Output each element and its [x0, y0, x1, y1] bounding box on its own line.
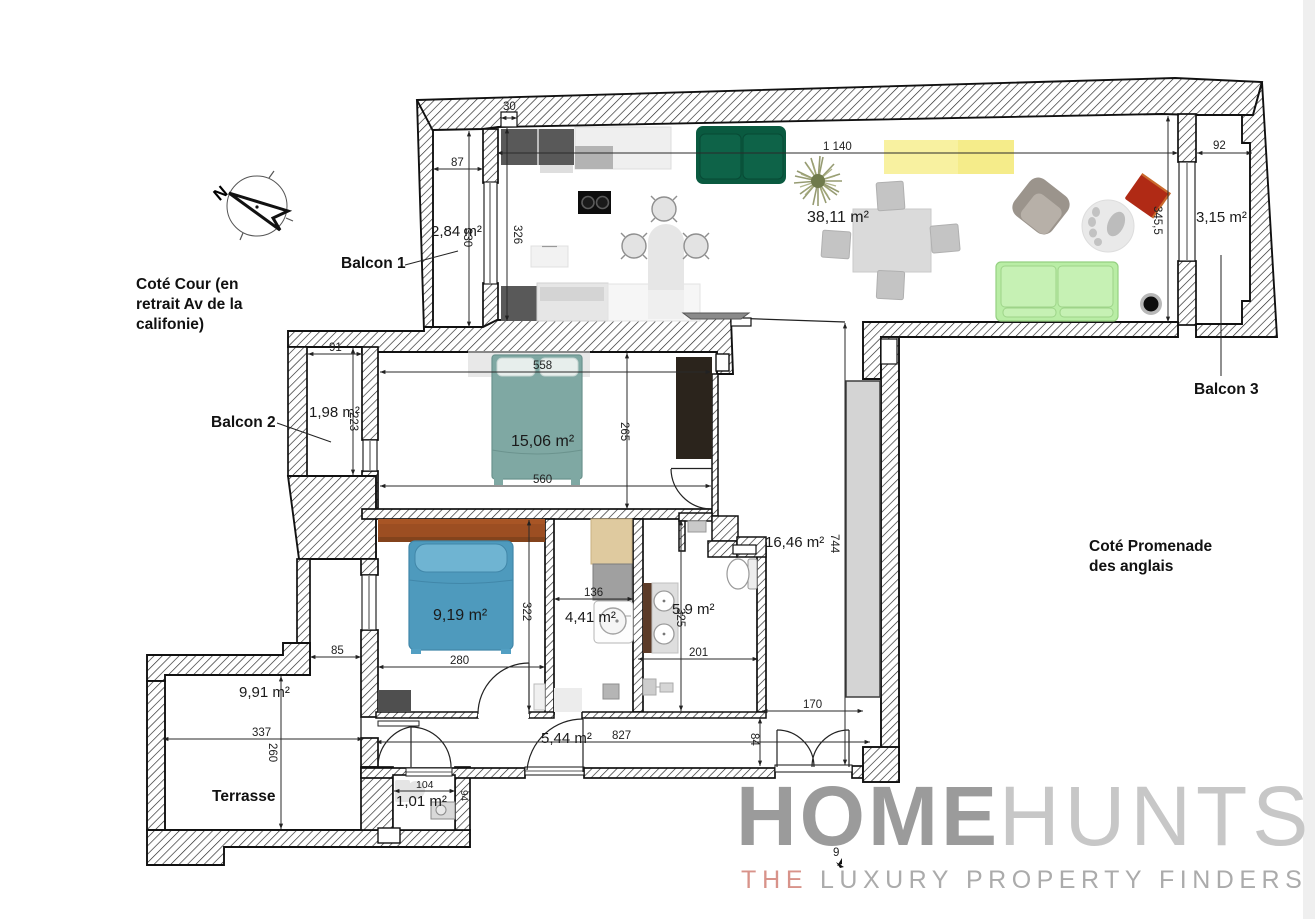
svg-text:9,19 m²: 9,19 m²	[433, 607, 488, 624]
svg-text:136: 136	[584, 587, 603, 599]
svg-text:Coté Promenade: Coté Promenade	[1089, 538, 1213, 555]
svg-text:1,98 m²: 1,98 m²	[309, 404, 360, 421]
svg-text:1 140: 1 140	[823, 141, 852, 153]
svg-text:744: 744	[828, 534, 840, 554]
svg-text:345,5: 345,5	[1151, 206, 1163, 235]
svg-text:337: 337	[252, 727, 271, 739]
svg-text:2,84 m²: 2,84 m²	[431, 223, 482, 240]
svg-text:201: 201	[689, 647, 708, 659]
svg-text:30: 30	[503, 101, 516, 113]
svg-text:Coté Cour (en: Coté Cour (en	[136, 276, 238, 293]
svg-text:THE: THE	[741, 866, 808, 894]
svg-text:HOME: HOME	[736, 769, 1000, 863]
svg-text:91: 91	[329, 342, 342, 354]
svg-text:92: 92	[1213, 140, 1226, 152]
svg-text:des anglais: des anglais	[1089, 558, 1173, 575]
svg-text:326: 326	[511, 225, 523, 244]
svg-text:558: 558	[533, 360, 552, 372]
svg-text:Balcon 1: Balcon 1	[341, 255, 406, 272]
svg-text:retrait Av de la: retrait Av de la	[136, 296, 243, 313]
svg-text:170: 170	[803, 699, 822, 711]
svg-text:87: 87	[451, 157, 464, 169]
svg-text:827: 827	[612, 730, 631, 742]
svg-text:califonie): califonie)	[136, 316, 204, 333]
svg-text:4,41 m²: 4,41 m²	[565, 609, 616, 626]
svg-text:LUXURY PROPERTY FINDERS: LUXURY PROPERTY FINDERS	[820, 866, 1307, 894]
svg-text:280: 280	[450, 655, 469, 667]
svg-text:560: 560	[533, 474, 552, 486]
svg-text:Balcon 2: Balcon 2	[211, 414, 276, 431]
svg-text:94: 94	[458, 790, 469, 802]
svg-text:104: 104	[416, 779, 434, 791]
svg-text:16,46 m²: 16,46 m²	[765, 534, 824, 551]
svg-text:3,15 m²: 3,15 m²	[1196, 209, 1247, 226]
svg-text:15,06 m²: 15,06 m²	[511, 433, 575, 450]
svg-text:5,9 m²: 5,9 m²	[672, 601, 715, 618]
svg-text:Terrasse: Terrasse	[212, 788, 276, 805]
svg-text:84: 84	[748, 733, 760, 746]
svg-text:1,01 m²: 1,01 m²	[396, 793, 447, 810]
svg-text:38,11 m²: 38,11 m²	[807, 209, 870, 226]
svg-text:260: 260	[266, 743, 278, 762]
svg-text:5,44 m²: 5,44 m²	[541, 730, 592, 747]
svg-text:322: 322	[520, 602, 532, 621]
svg-text:85: 85	[331, 645, 344, 657]
svg-text:HUNTS: HUNTS	[999, 769, 1313, 863]
svg-text:265: 265	[618, 422, 630, 441]
svg-text:9,91 m²: 9,91 m²	[239, 684, 290, 701]
svg-text:Balcon 3: Balcon 3	[1194, 381, 1259, 398]
